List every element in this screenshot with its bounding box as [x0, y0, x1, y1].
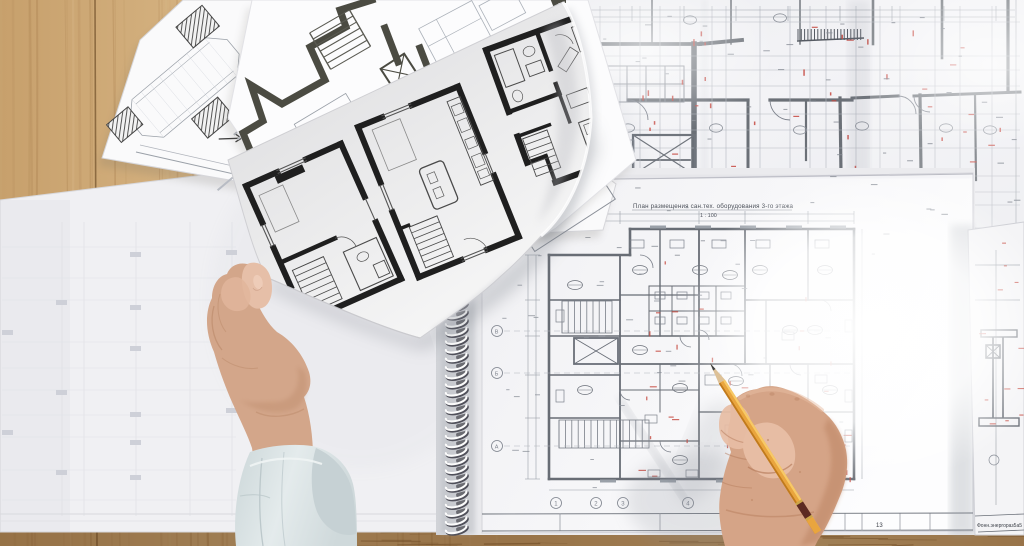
svg-text:В: В: [495, 329, 499, 335]
svg-text:13: 13: [876, 523, 883, 529]
svg-text:Фонн.энергораз5а5: Фонн.энергораз5а5: [977, 523, 1022, 529]
svg-text:Б: Б: [495, 371, 499, 377]
svg-text:А: А: [495, 444, 499, 450]
